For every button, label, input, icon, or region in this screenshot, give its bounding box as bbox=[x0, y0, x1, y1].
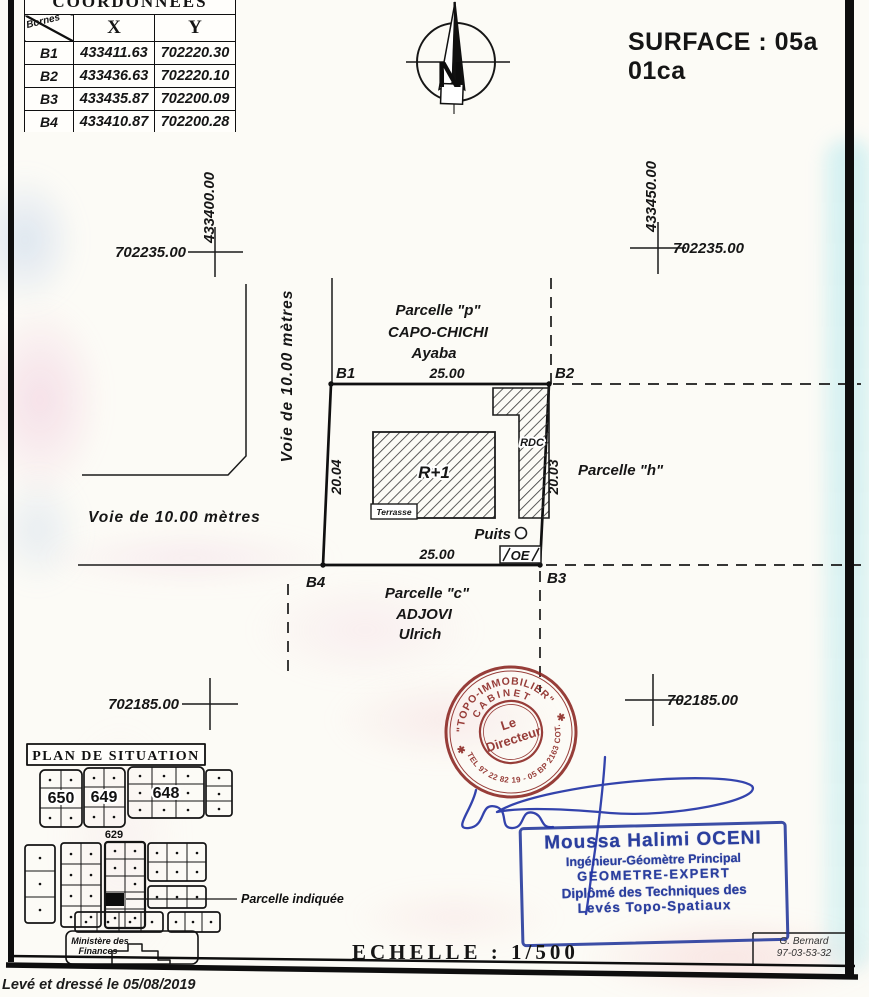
surveyor-credit: G. Bernard 97-03-53-32 bbox=[762, 936, 846, 960]
well: Puits bbox=[474, 526, 526, 543]
row-borne: B4 bbox=[25, 111, 74, 133]
road-labels: Voie de 10.00 mètres Voie de 10.00 mètre… bbox=[88, 290, 296, 526]
building-rdc: RDC bbox=[493, 388, 549, 518]
row-x: 433411.63 bbox=[74, 42, 155, 65]
dim-right: 20.03 bbox=[545, 459, 561, 495]
block-649-label: 649 bbox=[91, 789, 118, 806]
grid-cross-top-left: 702235.00 433400.00 bbox=[115, 171, 243, 277]
parcelle-h-label: Parcelle "h" bbox=[578, 462, 664, 479]
parcelle-c-line3: Ulrich bbox=[399, 626, 442, 643]
grid-cross-bottom-left: 702185.00 bbox=[108, 678, 238, 730]
cross-y-label: 702235.00 bbox=[115, 244, 187, 261]
compass-north-letter: N bbox=[437, 54, 463, 95]
road-south-label: Voie de 10.00 mètres bbox=[88, 509, 261, 526]
highlighted-parcel bbox=[106, 893, 124, 906]
table-row: B1 433411.63 702220.30 bbox=[25, 42, 236, 65]
row-x: 433410.87 bbox=[74, 111, 155, 133]
cross-y-label: 702185.00 bbox=[667, 692, 739, 709]
cross-y-label: 702235.00 bbox=[673, 240, 745, 257]
terrace: Terrasse bbox=[371, 504, 417, 519]
grid-cross-top-right: 702235.00 433450.00 bbox=[630, 160, 745, 274]
table-row: B3 433435.87 702200.09 bbox=[25, 88, 236, 111]
highlighted-parcel-label: Parcelle indiquée bbox=[241, 892, 344, 906]
row-borne: B3 bbox=[25, 88, 74, 111]
row-borne: B1 bbox=[25, 42, 74, 65]
row-y: 702220.30 bbox=[155, 42, 236, 65]
parcelle-c-line2: ADJOVI bbox=[395, 606, 453, 623]
parcelle-c-line1: Parcelle "c" bbox=[385, 585, 470, 602]
table-row: B2 433436.63 702220.10 bbox=[25, 65, 236, 88]
row-x: 433436.63 bbox=[74, 65, 155, 88]
row-y: 702220.10 bbox=[155, 65, 236, 88]
table-corner-cell: Bornes bbox=[25, 15, 74, 42]
table-row: B4 433410.87 702200.28 bbox=[25, 111, 236, 133]
borne-b1: B1 bbox=[336, 365, 355, 382]
row-borne: B2 bbox=[25, 65, 74, 88]
building-r1-label: R+1 bbox=[418, 463, 450, 482]
dim-left: 20.04 bbox=[328, 459, 344, 495]
surveyor-name: G. Bernard bbox=[762, 936, 846, 948]
situation-plan-title: PLAN DE SITUATION bbox=[32, 749, 200, 764]
row-y: 702200.28 bbox=[155, 111, 236, 133]
parcelle-p-line3: Ayaba bbox=[410, 345, 456, 362]
column-x-header: X bbox=[74, 15, 155, 42]
cross-x-label: 433400.00 bbox=[201, 171, 218, 244]
well-icon bbox=[516, 528, 527, 539]
block-650-label: 650 bbox=[48, 790, 75, 807]
frame-left bbox=[8, 0, 14, 962]
scanned-survey-plan: 702235.00 433400.00 702235.00 433450.00 … bbox=[0, 0, 869, 997]
borne-b3: B3 bbox=[547, 570, 567, 587]
borne-b4: B4 bbox=[306, 574, 326, 591]
ministry-label-line1: Ministère des bbox=[71, 936, 129, 946]
block-648-label: 648 bbox=[153, 785, 180, 802]
dim-top: 25.00 bbox=[428, 365, 464, 381]
north-arrow-icon: N bbox=[396, 0, 520, 118]
parcelle-p-line2: CAPO-CHICHI bbox=[388, 324, 489, 341]
footer-note: Levé et dressé le 05/08/2019 bbox=[2, 977, 195, 993]
surveyor-phone: 97-03-53-32 bbox=[762, 948, 846, 960]
frame-right bbox=[845, 0, 854, 975]
block-629-label: 629 bbox=[105, 829, 123, 841]
building-rdc-label: RDC bbox=[520, 437, 545, 449]
terrace-label: Terrasse bbox=[376, 507, 411, 517]
road-west-label: Voie de 10.00 mètres bbox=[279, 290, 296, 463]
stamp-star-right-icon: ✱ bbox=[556, 712, 568, 725]
column-y-header: Y bbox=[155, 15, 236, 42]
blue-stamp: Moussa Halimi OCENI Ingénieur-Géomètre P… bbox=[519, 821, 790, 948]
oe-box: OE bbox=[500, 546, 541, 563]
surface-label: SURFACE : 05a 01ca bbox=[628, 28, 869, 86]
round-stamp: "TOPO-IMMOBILIER" CABINET TEL 97 22 82 1… bbox=[425, 646, 597, 818]
parcelle-p-line1: Parcelle "p" bbox=[395, 302, 481, 319]
grid-cross-bottom-right: 702185.00 bbox=[625, 674, 739, 726]
dim-bottom: 25.00 bbox=[418, 546, 454, 562]
cross-x-label: 433450.00 bbox=[643, 160, 660, 233]
cross-y-label: 702185.00 bbox=[108, 696, 180, 713]
bornes-label: Bornes bbox=[25, 12, 61, 31]
oe-label: OE bbox=[511, 548, 530, 563]
scale-label: ECHELLE : 1/500 bbox=[352, 940, 579, 965]
borne-b2: B2 bbox=[555, 365, 575, 382]
row-y: 702200.09 bbox=[155, 88, 236, 111]
row-x: 433435.87 bbox=[74, 88, 155, 111]
well-label: Puits bbox=[474, 526, 511, 543]
situation-plan: PLAN DE SITUATION bbox=[25, 744, 344, 964]
coordinates-table: COORDONNEES Bornes X Y B1 433411.63 7022… bbox=[24, 0, 239, 132]
